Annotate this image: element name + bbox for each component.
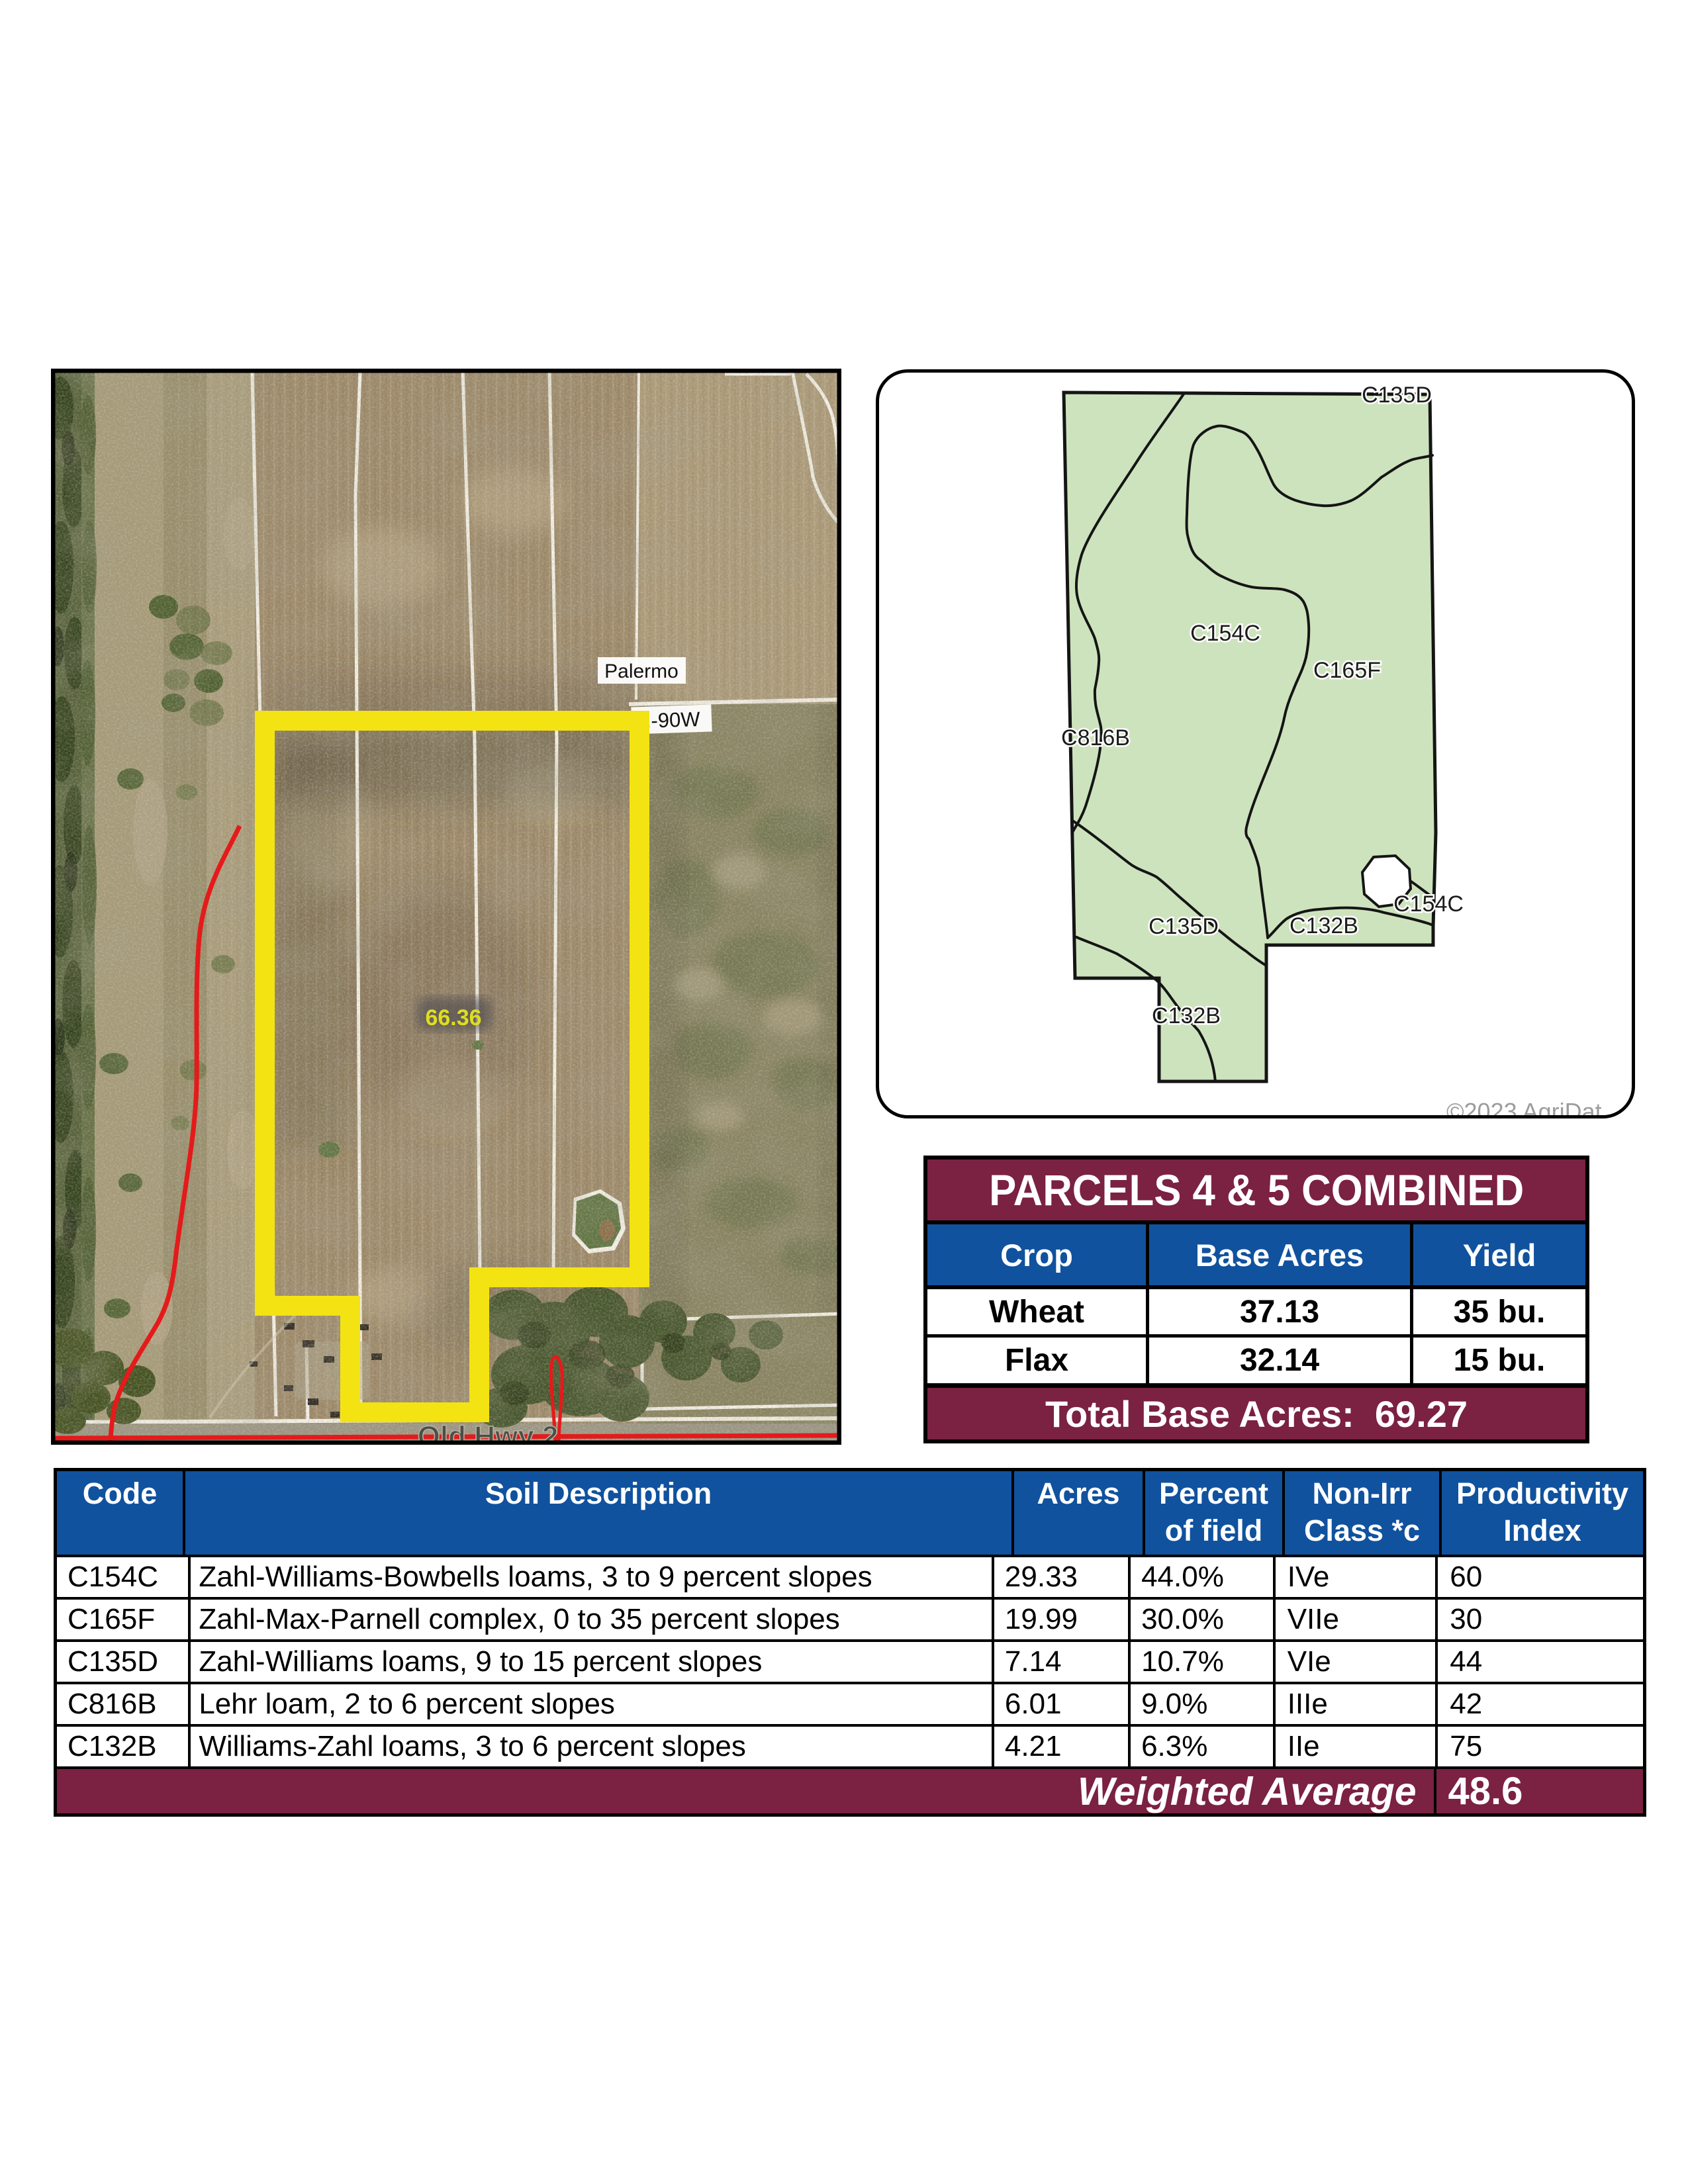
svg-text:C135D: C135D — [1149, 914, 1219, 939]
svg-text:C154C: C154C — [1190, 621, 1260, 646]
svg-text:C165F: C165F — [1313, 658, 1381, 683]
svg-text:66.36: 66.36 — [425, 1005, 481, 1030]
svg-text:C154C: C154C — [1393, 891, 1464, 917]
svg-text:C132B: C132B — [1289, 913, 1358, 938]
svg-text:Palermo: Palermo — [604, 660, 679, 682]
svg-text:C816B: C816B — [1061, 725, 1130, 751]
svg-text:C135D: C135D — [1362, 383, 1432, 408]
svg-text:C132B: C132B — [1152, 1003, 1221, 1028]
